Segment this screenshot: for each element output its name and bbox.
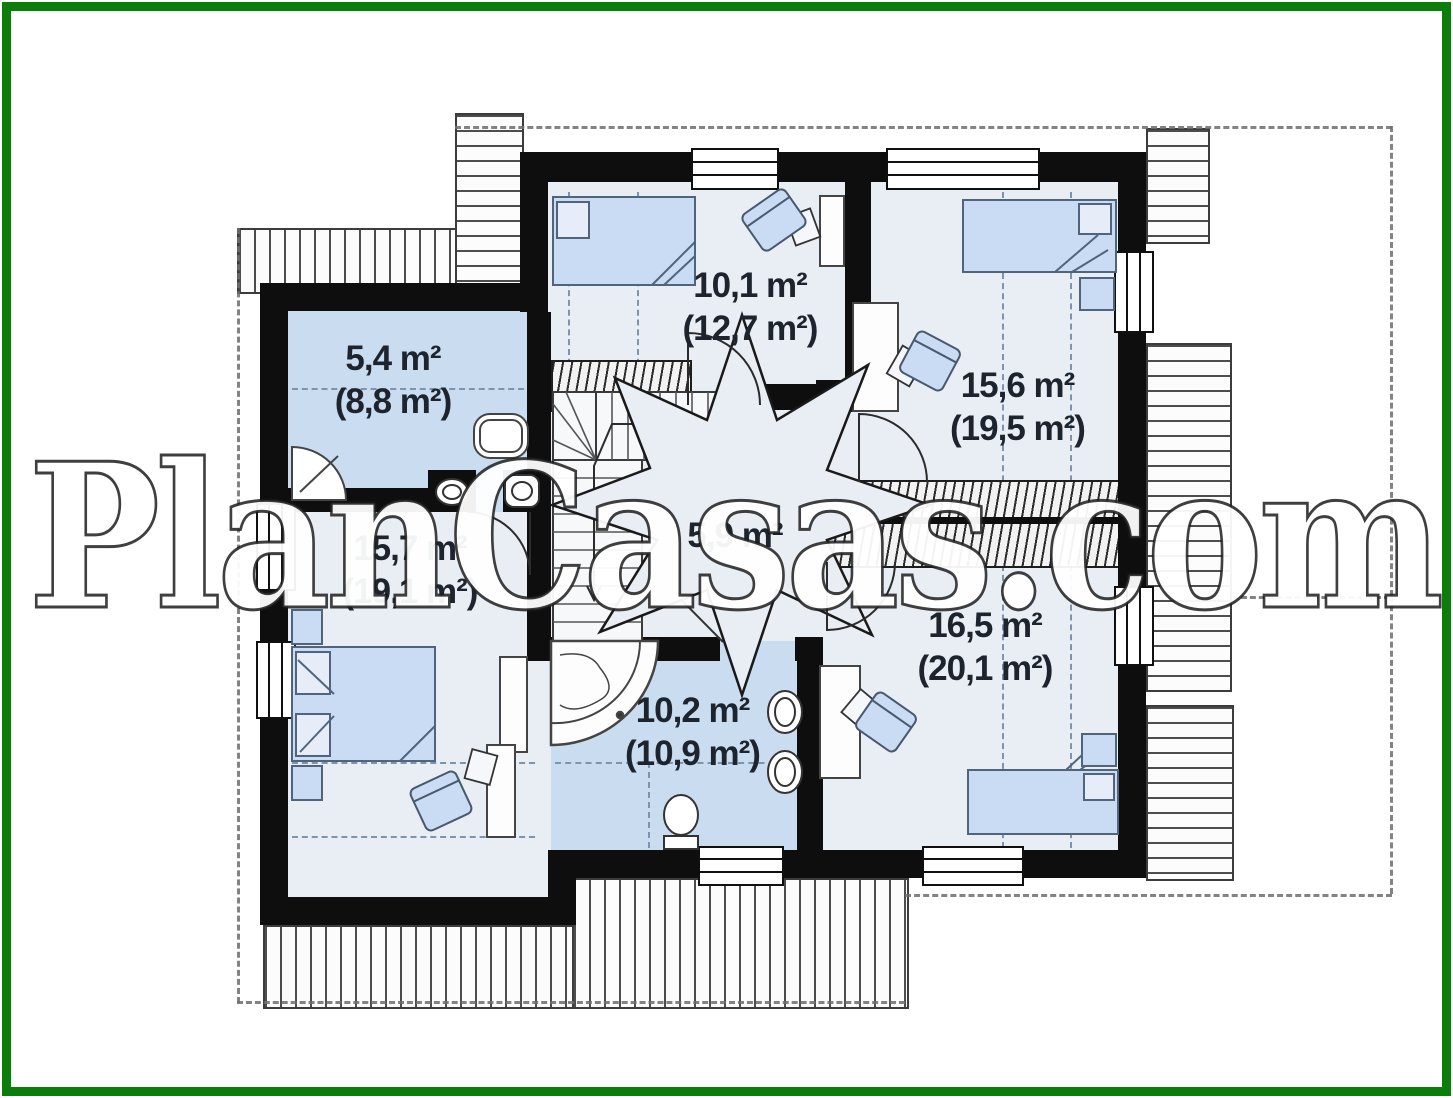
shower-icon bbox=[292, 447, 346, 500]
room-area-gross: (10,9 m²) bbox=[560, 733, 825, 776]
room-label-bathroom-bottom: 10,2 m² (10,9 m²) bbox=[560, 690, 825, 775]
room-area-gross: (12,7 m²) bbox=[600, 308, 900, 351]
double-bed-icon bbox=[292, 610, 435, 800]
room-area-gross: (20,1 m²) bbox=[850, 648, 1120, 691]
room-area-gross: (19,1 m²) bbox=[285, 571, 535, 614]
room-area: 10,2 m² bbox=[560, 690, 825, 733]
sink-icon bbox=[436, 479, 468, 505]
room-label-bedroom-left: 15,7 m² (19,1 m²) bbox=[285, 528, 535, 613]
room-label-bedroom-top-center: 10,1 m² (12,7 m²) bbox=[600, 265, 900, 350]
floor-plan-page: 5,4 m² (8,8 m²) 10,1 m² (12,7 m²) 15,6 m… bbox=[0, 0, 1453, 1098]
room-area-gross: (19,5 m²) bbox=[880, 408, 1155, 451]
room-area: 5,9 m² bbox=[610, 515, 860, 558]
room-label-hall: 5,9 m² bbox=[610, 515, 860, 558]
room-area: 16,5 m² bbox=[850, 605, 1120, 648]
room-area: 15,7 m² bbox=[285, 528, 535, 571]
toilet-icon bbox=[664, 795, 698, 849]
room-label-bedroom-bottom-right: 16,5 m² (20,1 m²) bbox=[850, 605, 1120, 690]
single-bed-icon bbox=[968, 734, 1118, 834]
single-bed-icon bbox=[963, 200, 1116, 310]
room-label-bathroom-top-left: 5,4 m² (8,8 m²) bbox=[268, 338, 518, 423]
room-label-bedroom-top-right: 15,6 m² (19,5 m²) bbox=[880, 365, 1155, 450]
room-area: 15,6 m² bbox=[880, 365, 1155, 408]
toilet-icon bbox=[505, 475, 539, 507]
room-area: 10,1 m² bbox=[600, 265, 900, 308]
room-area: 5,4 m² bbox=[268, 338, 518, 381]
room-area-gross: (8,8 m²) bbox=[268, 381, 518, 424]
